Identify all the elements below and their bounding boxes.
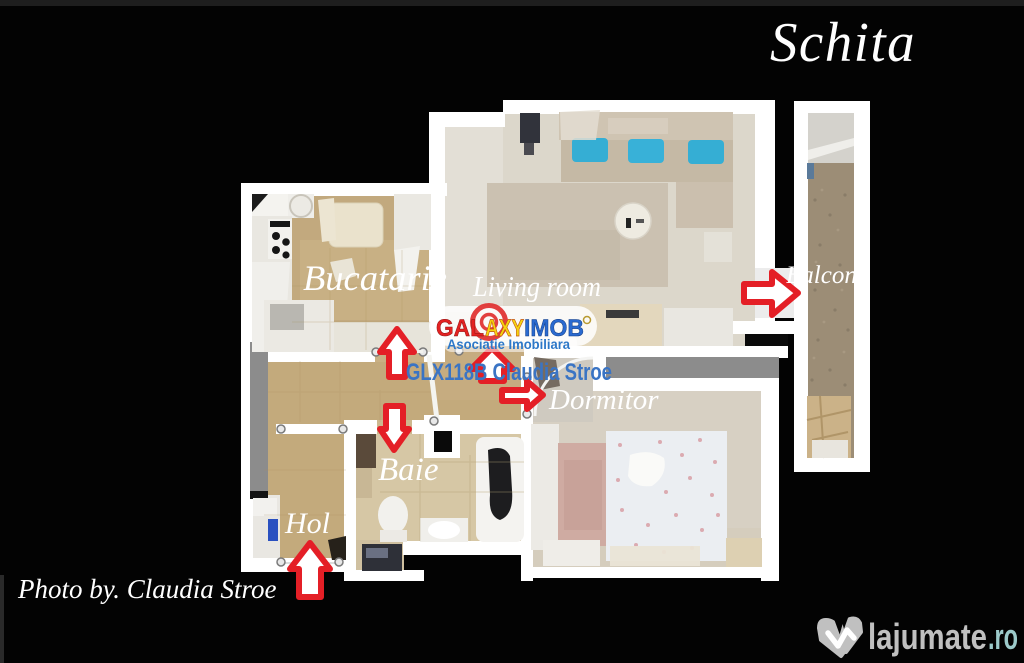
svg-text:Asociatie Imobiliara: Asociatie Imobiliara <box>447 337 570 352</box>
svg-text:Dormitor: Dormitor <box>548 384 659 416</box>
svg-text:GLX118B Claudia Stroe: GLX118B Claudia Stroe <box>406 359 612 386</box>
svg-text:lajumate: lajumate <box>868 616 987 657</box>
svg-text:Bucatarie: Bucatarie <box>303 258 447 298</box>
svg-text:Baie: Baie <box>378 452 438 488</box>
svg-text:Living room: Living room <box>472 271 601 303</box>
svg-text:Balcon: Balcon <box>786 262 857 289</box>
svg-text:Photo by. Claudia Stroe: Photo by. Claudia Stroe <box>17 574 277 604</box>
svg-text:.ro: .ro <box>988 616 1018 657</box>
svg-text:Schita: Schita <box>770 12 916 74</box>
svg-text:Hol: Hol <box>284 507 330 540</box>
